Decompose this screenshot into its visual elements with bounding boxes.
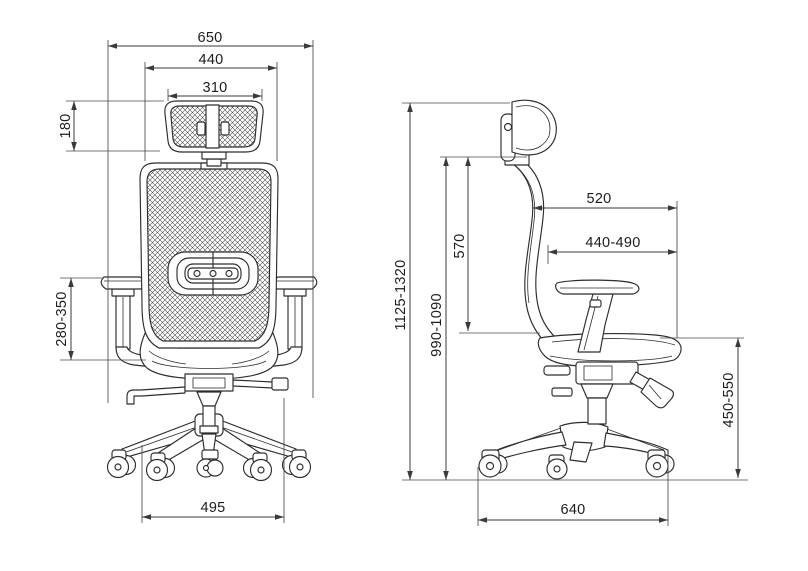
dim-label-headrest-width: 310 [202, 80, 227, 96]
base-side [479, 384, 674, 479]
dim-overall-height: 1125-1320 [393, 103, 510, 480]
headrest-stem [207, 159, 221, 166]
mechanism-box [576, 362, 638, 384]
lumbar-support [168, 252, 258, 295]
armrest-pad [556, 280, 639, 294]
dim-label-overall-width: 650 [197, 30, 222, 46]
dimension-drawing: 650 440 310 180 [0, 0, 808, 571]
dim-label-base-depth: 640 [560, 502, 585, 518]
seat-side [538, 334, 681, 367]
drawing-canvas: 650 440 310 180 [0, 0, 808, 571]
dim-label-seat-height: 450-550 [721, 372, 737, 427]
dim-headrest-width: 310 [168, 80, 262, 101]
gas-cylinder-front [197, 392, 221, 433]
dim-label-armrest-height: 280-350 [54, 291, 70, 346]
dim-label-headrest-height: 180 [58, 113, 74, 138]
headrest-clip-left [197, 122, 205, 135]
headrest-stem-top [202, 152, 226, 159]
dim-label-backrest-height: 570 [452, 233, 468, 258]
dim-label-overall-height: 1125-1320 [393, 260, 409, 331]
leg-center [570, 442, 592, 462]
lever-left [127, 387, 185, 404]
lever-right-handle [272, 378, 288, 390]
caster [646, 450, 674, 477]
armrest-bracket [112, 289, 134, 296]
headrest-side [501, 100, 556, 165]
base-front [108, 392, 311, 481]
headrest-bolt [505, 124, 512, 131]
backrest-front [140, 163, 278, 348]
caster-center [197, 450, 223, 477]
dim-label-seat-total-depth: 520 [586, 191, 611, 207]
armrest-button [590, 300, 601, 307]
dim-label-backrest-width: 440 [198, 52, 223, 68]
caster [547, 455, 567, 479]
dim-headrest-height: 180 [58, 101, 164, 151]
dim-label-base-width: 495 [200, 500, 225, 516]
gas-cylinder-side [581, 384, 613, 424]
side-view-dimensions: 1125-1320 990-1090 570 520 [393, 103, 744, 526]
headrest-center-strip [206, 105, 219, 148]
armrest-bracket [284, 289, 306, 296]
headrest-front [165, 101, 263, 166]
front-view [101, 101, 317, 481]
lever-right-rod [233, 380, 273, 388]
dim-label-back-height: 990-1090 [429, 293, 445, 357]
armrest-pad [274, 277, 317, 289]
dim-label-seat-depth: 440-490 [585, 235, 640, 251]
dim-seat-depth: 440-490 [548, 235, 677, 264]
lever-paddle [544, 366, 570, 375]
headrest-clip-right [221, 122, 229, 135]
dim-back-height: 990-1090 [429, 157, 527, 480]
mechanism-box [185, 374, 233, 391]
lever-tab [552, 388, 572, 396]
backrest-spine-side [513, 158, 577, 356]
